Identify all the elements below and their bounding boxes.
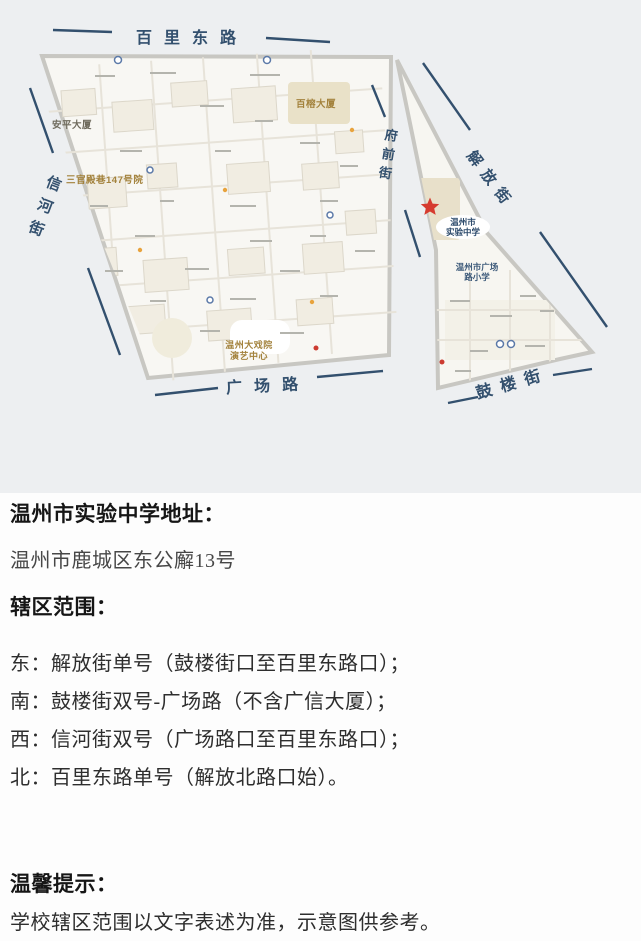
street-label-bailidong-road: 百里东路	[136, 24, 248, 48]
label-guangchang-primary-school: 温州市广场 路小学	[446, 262, 508, 282]
district-map-canvas	[0, 0, 641, 493]
district-map: 百里东路 信河街 广场路 鼓楼街 府前街 解放街 安平大厦 三官殿巷147号院 …	[0, 0, 641, 493]
landmark-sanguandian-lane: 三官殿巷147号院	[66, 172, 143, 186]
landmark-anping-building: 安平大厦	[52, 117, 92, 131]
landmark-theater-line2: 演艺中心	[230, 351, 268, 361]
address-heading: 温州市实验中学地址：	[10, 498, 225, 528]
tips-text: 学校辖区范围以文字表述为准，示意图供参考。	[10, 906, 441, 935]
boundary-west: 西：信河街双号（广场路口至百里东路口）；	[10, 723, 410, 752]
primary-school-line2: 路小学	[464, 272, 490, 282]
boundary-north: 北：百里东路单号（解放北路口始）。	[10, 761, 349, 790]
landmark-theater-line1: 温州大戏院	[225, 340, 273, 350]
boundary-south: 南：鼓楼街双号-广场路（不含广信大厦）；	[10, 685, 397, 714]
district-range-heading: 辖区范围：	[10, 591, 118, 621]
address-text: 温州市鹿城区东公廨13号	[10, 544, 236, 573]
tips-heading: 温馨提示：	[10, 868, 118, 898]
street-label-guangchang-road: 广场路	[225, 370, 310, 398]
school-label-line1: 温州市	[450, 217, 476, 227]
school-label-experimental-middle: 温州市 实验中学	[436, 217, 490, 237]
school-label-line2: 实验中学	[446, 227, 480, 237]
district-description: 温州市实验中学地址： 温州市鹿城区东公廨13号 辖区范围： 东：解放街单号（鼓楼…	[0, 493, 641, 941]
primary-school-line1: 温州市广场	[456, 262, 499, 272]
article-page: 百里东路 信河街 广场路 鼓楼街 府前街 解放街 安平大厦 三官殿巷147号院 …	[0, 0, 641, 941]
landmark-theater-center: 温州大戏院 演艺中心	[220, 340, 278, 362]
boundary-east: 东：解放街单号（鼓楼街口至百里东路口）；	[10, 647, 410, 676]
landmark-bairong-building: 百榕大厦	[296, 96, 336, 110]
